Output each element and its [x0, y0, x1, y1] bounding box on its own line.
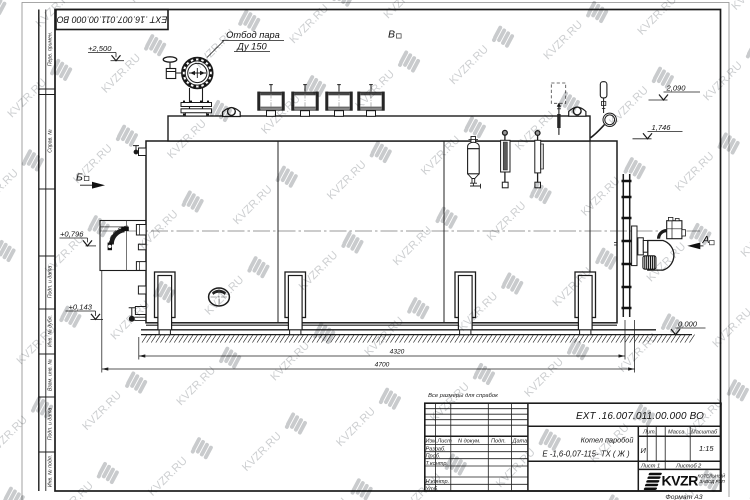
svg-text:1:15: 1:15 [699, 444, 714, 453]
svg-text:1,746: 1,746 [652, 123, 672, 132]
svg-text:Лист 1: Лист 1 [640, 463, 660, 469]
svg-text:Ду 150: Ду 150 [236, 42, 267, 52]
svg-text:Взам. инв. №: Взам. инв. № [48, 359, 54, 391]
svg-text:Лит.: Лит. [642, 430, 656, 436]
svg-text:Е -1,6-0,07-115- ТХ ( Ж ): Е -1,6-0,07-115- ТХ ( Ж ) [542, 450, 630, 459]
svg-text:Инв. № подл.: Инв. № подл. [48, 455, 54, 487]
svg-text:Разраб.: Разраб. [426, 446, 446, 452]
svg-text:Листоб 2: Листоб 2 [675, 463, 702, 469]
svg-text:KVZR: KVZR [662, 474, 699, 490]
svg-text:В: В [388, 29, 395, 41]
svg-text:Перв. примен.: Перв. примен. [48, 32, 54, 66]
svg-text:Подп.: Подп. [491, 439, 506, 445]
svg-text:ЕХТ .16.007.011.00.000 ВО: ЕХТ .16.007.011.00.000 ВО [57, 14, 168, 24]
svg-text:4320: 4320 [390, 349, 405, 356]
svg-text:И: И [641, 446, 647, 455]
svg-text:Дата: Дата [512, 439, 528, 445]
svg-text:Справ. №: Справ. № [48, 129, 54, 153]
svg-text:+2,500: +2,500 [88, 44, 112, 53]
svg-text:Изм.Лист: Изм.Лист [426, 439, 453, 445]
svg-text:N докум.: N докум. [458, 439, 481, 445]
svg-text:4700: 4700 [375, 362, 390, 369]
svg-text:Проб.: Проб. [426, 453, 441, 459]
svg-text:Т.контр.: Т.контр. [426, 461, 449, 467]
